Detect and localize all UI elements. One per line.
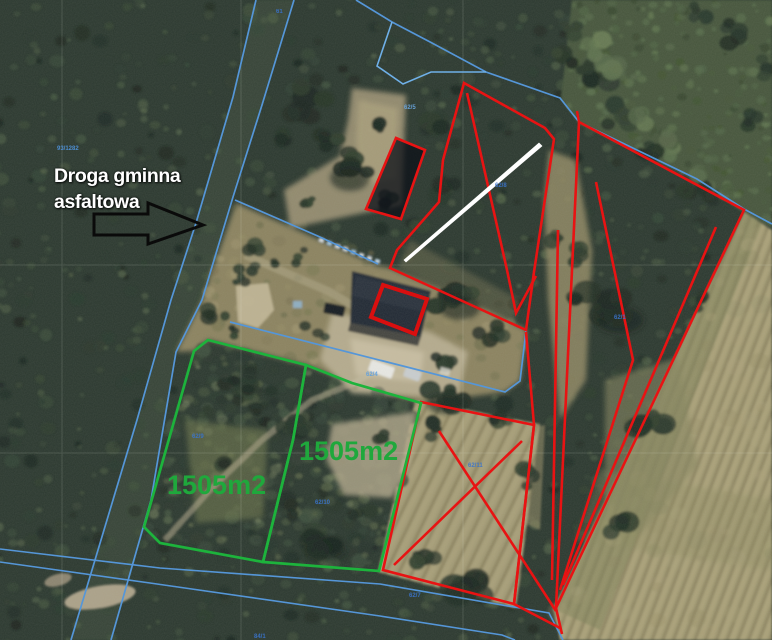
svg-text:1505m2: 1505m2 [299, 436, 398, 466]
svg-text:62/4: 62/4 [366, 372, 378, 378]
svg-text:61: 61 [276, 9, 283, 15]
svg-text:1505m2: 1505m2 [167, 470, 266, 500]
svg-text:62/7: 62/7 [409, 593, 421, 599]
svg-text:62/1: 62/1 [614, 315, 626, 321]
svg-text:84/1: 84/1 [254, 634, 266, 640]
svg-text:62/5: 62/5 [404, 105, 416, 111]
svg-text:62/11: 62/11 [468, 463, 483, 469]
svg-text:62/9: 62/9 [192, 434, 204, 440]
svg-text:62/8: 62/8 [495, 183, 507, 189]
svg-text:93/1282: 93/1282 [57, 146, 79, 152]
svg-text:asfaltowa: asfaltowa [54, 191, 140, 213]
svg-text:Droga gminna: Droga gminna [54, 165, 181, 187]
svg-text:62/10: 62/10 [315, 500, 331, 506]
